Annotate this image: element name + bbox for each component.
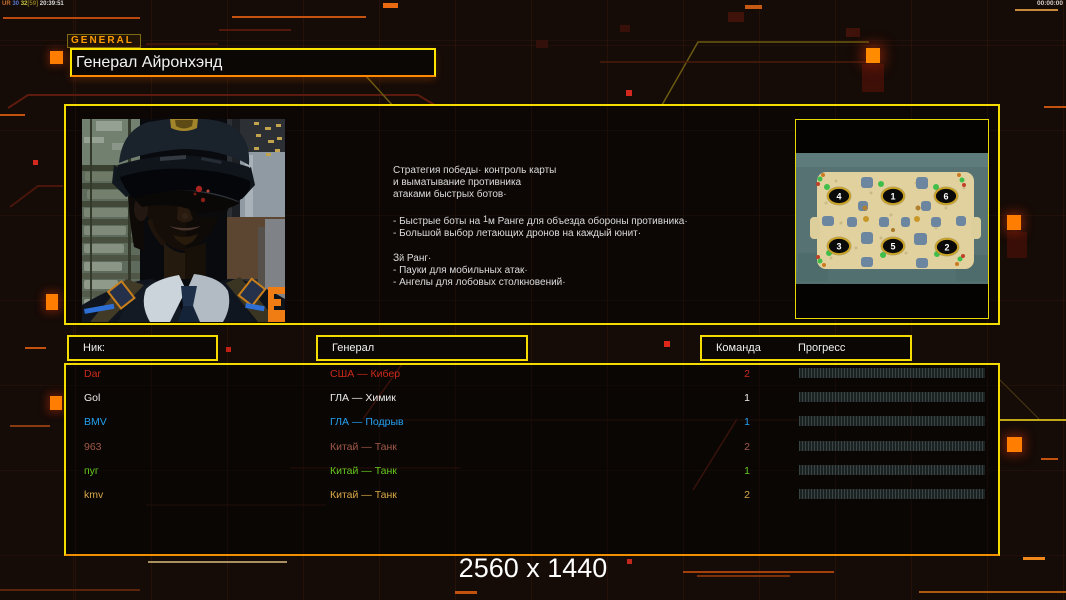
svg-text:1: 1 xyxy=(890,192,895,202)
svg-text:5: 5 xyxy=(890,242,895,252)
svg-text:6: 6 xyxy=(943,192,948,202)
svg-text:4: 4 xyxy=(836,192,841,202)
svg-text:2: 2 xyxy=(944,243,949,253)
svg-text:3: 3 xyxy=(836,242,841,252)
